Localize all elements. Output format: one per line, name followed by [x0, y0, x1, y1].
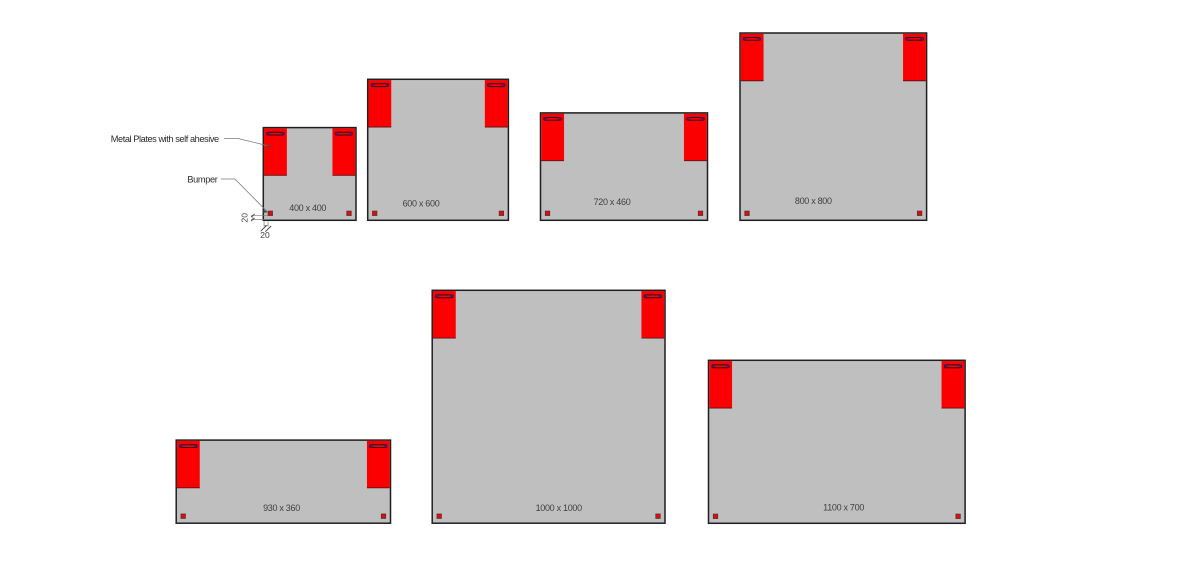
- svg-text:1000 x 1000: 1000 x 1000: [536, 503, 583, 513]
- svg-text:800 x 800: 800 x 800: [795, 196, 832, 206]
- svg-text:20: 20: [239, 213, 249, 223]
- svg-text:720 x 460: 720 x 460: [594, 197, 631, 207]
- svg-text:400 x 400: 400 x 400: [289, 203, 326, 213]
- svg-text:Metal Plates with self ahesive: Metal Plates with self ahesive: [111, 134, 219, 144]
- svg-text:930 x 360: 930 x 360: [263, 503, 300, 513]
- svg-text:600 x 600: 600 x 600: [403, 199, 440, 209]
- svg-text:20: 20: [260, 230, 270, 240]
- svg-text:Bumper: Bumper: [187, 175, 217, 185]
- svg-text:1100 x 700: 1100 x 700: [823, 503, 864, 513]
